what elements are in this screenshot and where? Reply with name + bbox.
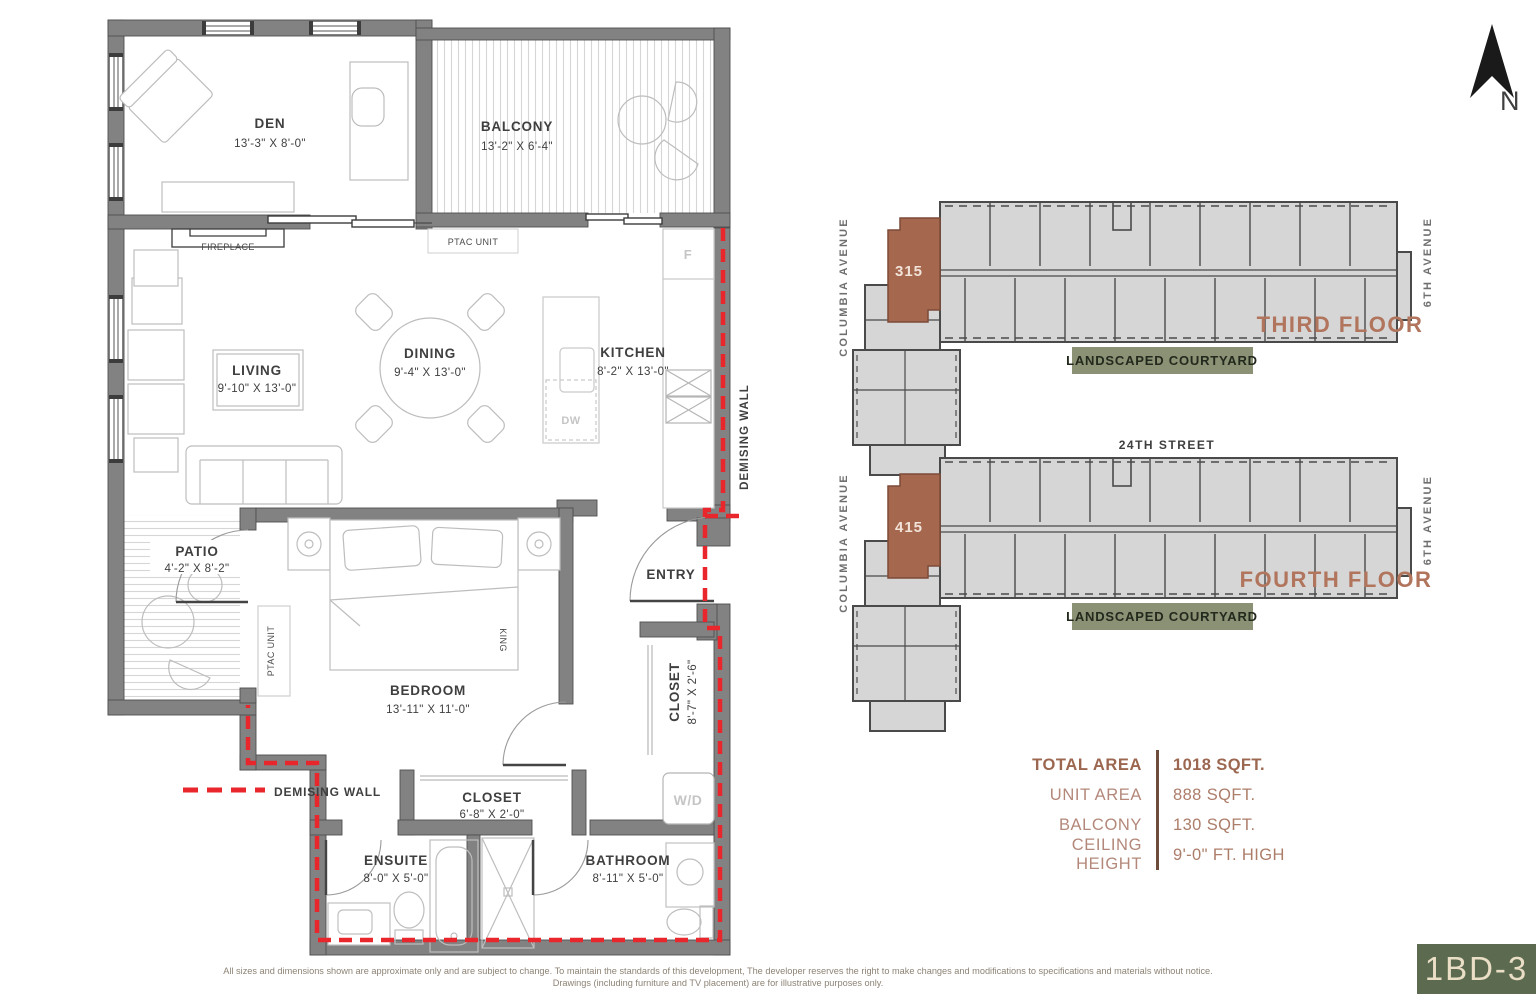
closet-rod [420,776,568,780]
den-armchair [118,48,213,143]
living-dims: 9'-10" X 13'-0" [218,383,297,395]
disclaimer-line-2: Drawings (including furniture and TV pla… [118,978,1318,990]
floorplan-page: DEN 13'-3" X 8'-0" BALCONY 13'-2" X 6'-4… [0,0,1536,994]
bedroom-dims: 13'-11" X 11'-0" [386,704,470,716]
living-side-table [134,438,178,472]
ensuite-toilet [394,892,424,928]
fourth-floor-title: FOURTH FLOOR [1240,567,1433,592]
island-sink [560,348,594,392]
balcony-deck-hatch [432,40,714,213]
fourth-columbia-avenue-label: COLUMBIA AVENUE [838,473,850,613]
table-row: UNIT AREA 888 SQFT. [1002,780,1323,810]
disclaimer-line-1: All sizes and dimensions shown are appro… [118,966,1318,978]
living-label: LIVING [232,363,282,378]
unit-type-badge: 1BD-3 [1417,944,1536,994]
balcony-label: BALCONY [481,119,553,134]
demising-wall-legend-label: DEMISING WALL [274,785,381,799]
third-6th-avenue-label: 6TH AVENUE [1422,217,1434,307]
king-bed [330,520,518,670]
disclaimer-text: All sizes and dimensions shown are appro… [118,966,1318,989]
entry-closet-label: CLOSET [667,662,682,722]
fireplace-label: FIREPLACE [201,242,255,252]
fourth-courtyard-label: LANDSCAPED COURTYARD [1066,609,1258,624]
ceiling-height-label: CEILING HEIGHT [1002,840,1156,870]
dishwasher-label: DW [561,415,580,427]
balcony-dims: 13'-2" X 6'-4" [481,141,553,153]
bedroom-closet-dims: 6'-8" X 2'-0" [459,809,524,821]
living-rug [213,350,303,410]
bathroom-label: BATHROOM [586,853,671,868]
ensuite-sink [328,903,390,945]
north-letter: N [1500,86,1520,116]
nightstand [288,518,330,570]
living-armchair [128,330,184,380]
dining-label: DINING [404,346,456,361]
dining-dims: 9'-4" X 13'-0" [394,367,466,379]
ptac-patio-label: PTAC UNIT [266,626,276,677]
den-console [162,182,294,212]
shower [482,838,534,948]
third-floor-title: THIRD FLOOR [1257,312,1424,337]
den-dims: 13'-3" X 8'-0" [234,138,306,150]
unit-type-label: 1BD-3 [1425,950,1529,988]
ensuite-dims: 8'-0" X 5'-0" [363,873,428,885]
ceiling-height-value: 9'-0" FT. HIGH [1156,840,1323,870]
north-arrow: N [1460,18,1530,118]
24th-street-label: 24TH STREET [1119,438,1216,452]
ptac-balcony-label: PTAC UNIT [448,237,499,247]
den-chair [352,88,384,126]
bathroom-toilet [667,909,701,935]
fridge-label: F [684,247,692,262]
table-row: CEILING HEIGHT 9'-0" FT. HIGH [1002,840,1323,870]
bedroom-label: BEDROOM [390,683,466,698]
third-courtyard-label: LANDSCAPED COURTYARD [1066,353,1258,368]
living-armchair [128,384,184,434]
entry-closet-dims: 8'-7" X 2'-6" [687,659,699,724]
unit-floor-plan: DEN 13'-3" X 8'-0" BALCONY 13'-2" X 6'-4… [0,0,800,994]
unit-315-number: 315 [895,263,923,280]
fourth-6th-avenue-label: 6TH AVENUE [1422,475,1434,565]
unit-415-number: 415 [895,519,923,536]
bedroom-closet-label: CLOSET [462,790,522,805]
living-sofa [186,446,342,504]
living-side-table [134,250,178,286]
closet-rod [648,645,652,755]
den-label: DEN [255,116,286,131]
patio-dims: 4'-2" X 8'-2" [164,563,229,575]
unit-area-label: UNIT AREA [1002,780,1156,810]
entry-label: ENTRY [646,567,695,582]
unit-area-value: 888 SQFT. [1156,780,1323,810]
area-summary-table: TOTAL AREA 1018 SQFT. UNIT AREA 888 SQFT… [1002,750,1323,870]
keyplan-fourth-floor: 24TH STREET 415 COLUMBIA AVE [820,432,1445,762]
kitchen-label: KITCHEN [600,345,666,360]
patio-label: PATIO [175,544,218,559]
table-row: TOTAL AREA 1018 SQFT. [1002,750,1323,780]
total-area-label: TOTAL AREA [1002,750,1156,780]
stove [666,370,711,423]
bathroom-sink [666,843,714,907]
demising-wall-vertical-label: DEMISING WALL [739,384,751,490]
total-area-value: 1018 SQFT. [1156,750,1323,780]
washer-dryer-label: W/D [674,792,703,808]
bathroom-dims: 8'-11" X 5'-0" [592,873,663,885]
third-columbia-avenue-label: COLUMBIA AVENUE [838,217,850,357]
ensuite-label: ENSUITE [364,853,428,868]
kitchen-dims: 8'-2" X 13'-0" [597,366,669,378]
king-label: KING [498,628,508,652]
balcony-area-value: 130 SQFT. [1156,810,1323,840]
nightstand [518,518,560,570]
